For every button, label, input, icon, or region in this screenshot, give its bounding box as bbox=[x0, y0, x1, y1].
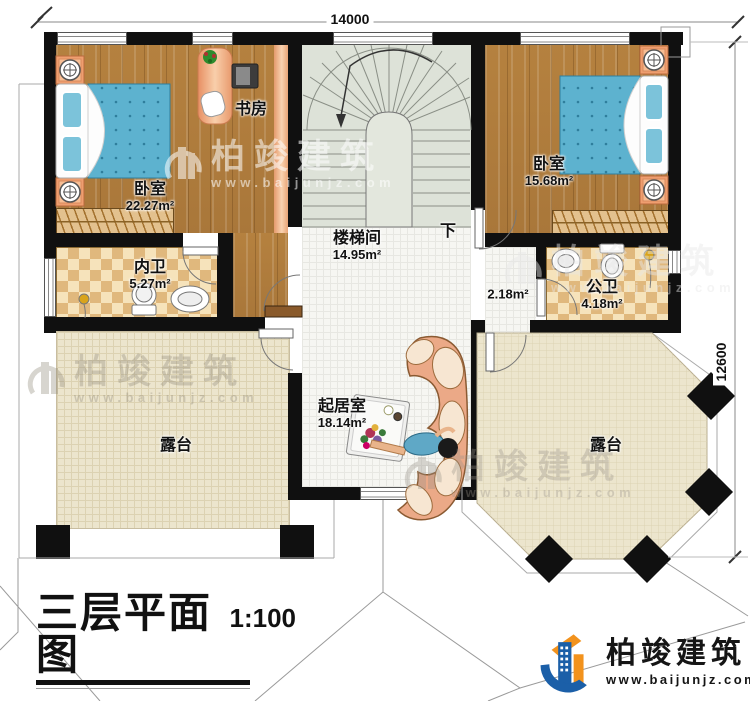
door-bath-inner bbox=[183, 247, 218, 255]
label-bath-inner: 内卫 5.27m² bbox=[129, 259, 170, 291]
dimension-height: 12600 bbox=[713, 339, 729, 386]
label-bedroom-right: 卧室 15.68m² bbox=[525, 156, 573, 188]
label-living: 起居室 18.14m² bbox=[318, 398, 366, 430]
shower-icon bbox=[79, 294, 89, 304]
brand-name: 柏竣建筑 bbox=[606, 639, 750, 669]
label-bedroom-left: 卧室 22.27m² bbox=[126, 181, 174, 213]
brand-logo: 柏竣建筑 www.baijunjz.com bbox=[536, 630, 750, 694]
floor-area-text: 本层建筑面积: 98.86m² bbox=[36, 697, 296, 701]
label-terrace-left: 露台 bbox=[160, 437, 192, 455]
stair-direction-arrow bbox=[336, 114, 346, 128]
label-stairwell: 楼梯间 14.95m² bbox=[333, 230, 381, 262]
drawing-scale: 1:100 bbox=[230, 603, 297, 634]
label-stair-down: 下 bbox=[440, 223, 456, 241]
cup-icon bbox=[393, 412, 402, 421]
label-corridor-area: 2.18m² bbox=[487, 288, 528, 303]
door-hall-wood bbox=[265, 306, 302, 317]
title-underline-thin bbox=[36, 688, 250, 689]
staircase bbox=[302, 45, 471, 227]
brand-logo-icon bbox=[536, 630, 598, 694]
shower-icon bbox=[644, 250, 654, 260]
label-bath-public: 公卫 4.18m² bbox=[581, 279, 622, 311]
bed-right bbox=[560, 46, 668, 204]
label-study: 书房 bbox=[235, 101, 267, 119]
brand-url: www.baijunjz.com bbox=[606, 673, 750, 686]
title-underline bbox=[36, 680, 250, 685]
title-block: 三层平面图 1:100 本层建筑面积: 98.86m² 层高: 3.3m bbox=[36, 592, 296, 701]
door-terrace-left bbox=[259, 329, 293, 338]
door-terrace-right bbox=[486, 333, 494, 371]
door-bath-public bbox=[537, 279, 545, 316]
door-bedroom-right bbox=[475, 208, 483, 248]
label-terrace-right: 露台 bbox=[590, 437, 622, 455]
page-title: 三层平面图 bbox=[36, 592, 216, 676]
floor-plan-canvas: 卧室 22.27m² 书房 内卫 5.27m² 楼梯间 14.95m² 下 卧室… bbox=[0, 0, 750, 701]
dimension-width: 14000 bbox=[327, 11, 374, 27]
